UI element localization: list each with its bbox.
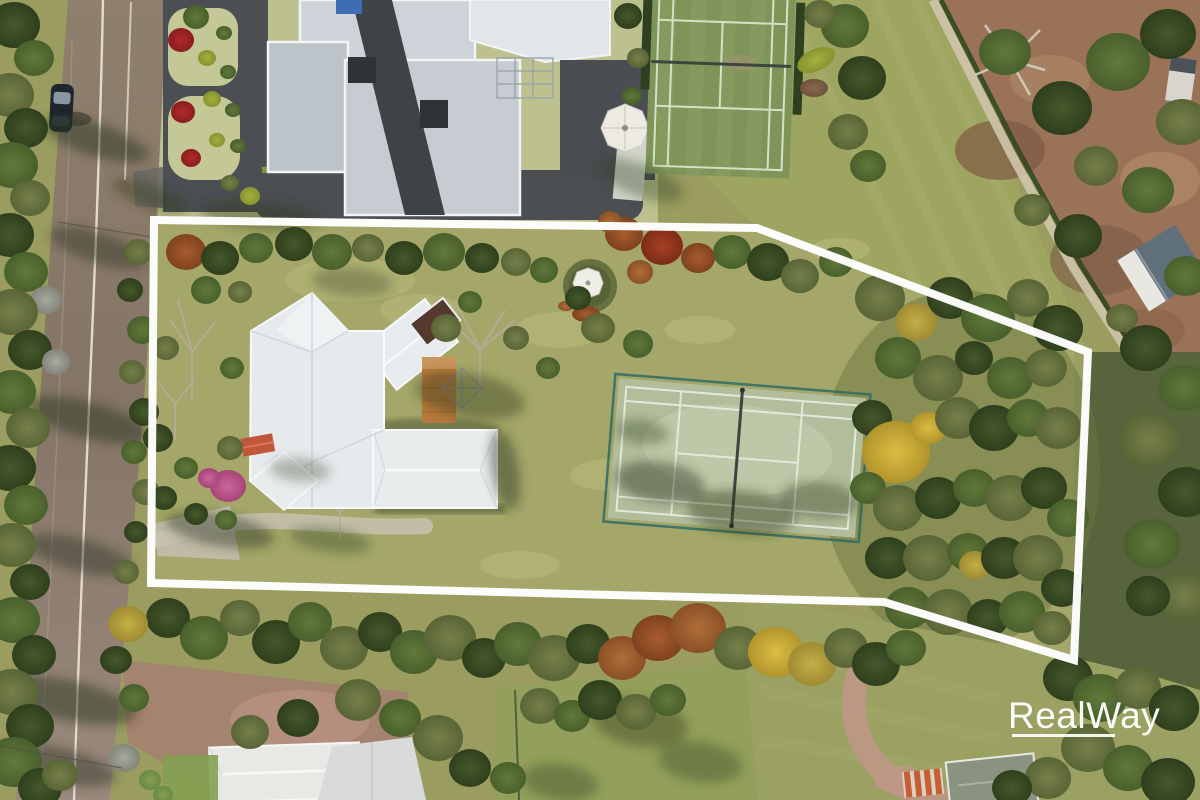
tree-canopy — [530, 257, 558, 283]
tree-canopy — [352, 234, 384, 262]
tree-canopy — [1025, 349, 1067, 387]
tree-canopy — [423, 233, 465, 271]
tree-canopy — [209, 133, 225, 147]
tree-canopy — [220, 600, 260, 636]
tree-canopy — [312, 234, 352, 270]
tree-canopy — [4, 485, 48, 525]
tree-canopy — [124, 239, 152, 265]
tree-canopy — [465, 243, 499, 273]
tree-canopy — [886, 630, 926, 666]
tree-canopy — [119, 684, 149, 712]
tree-canopy — [181, 149, 201, 167]
aerial-photo-canvas — [0, 0, 1200, 800]
tree-canopy — [117, 278, 143, 302]
tree-canopy — [215, 510, 237, 530]
tree-canopy — [713, 235, 751, 269]
tree-canopy — [139, 770, 161, 790]
neighbour-mansion — [133, 0, 655, 220]
tree-canopy — [6, 408, 50, 448]
tree-canopy — [501, 248, 531, 276]
tree-canopy — [623, 330, 653, 358]
tree-canopy — [171, 101, 195, 123]
tree-canopy — [458, 291, 482, 313]
tree-canopy — [1025, 757, 1071, 799]
tree-canopy — [1035, 407, 1081, 449]
tree-canopy — [221, 175, 239, 191]
tree-canopy — [231, 715, 269, 749]
tree-canopy — [203, 91, 221, 107]
tree-canopy — [1106, 304, 1138, 332]
tree-canopy — [108, 744, 140, 772]
tree-canopy — [1033, 611, 1071, 645]
tree-canopy — [581, 313, 615, 343]
tree-canopy — [198, 50, 216, 66]
tree-canopy — [10, 180, 50, 216]
tree-canopy — [804, 0, 836, 28]
tree-canopy — [385, 241, 423, 275]
tree-canopy — [168, 28, 194, 52]
tree-canopy — [641, 227, 683, 265]
tree-canopy — [143, 424, 173, 452]
tree-canopy — [121, 440, 147, 464]
tree-canopy — [277, 699, 319, 737]
tree-canopy — [913, 355, 963, 401]
tree-canopy — [166, 234, 206, 270]
watermark-underline — [1012, 734, 1115, 737]
tree-canopy — [449, 749, 491, 787]
tree-canopy — [850, 150, 886, 182]
tree-canopy — [650, 684, 686, 716]
tree-canopy — [781, 259, 819, 293]
tree-canopy — [42, 759, 78, 791]
tree-canopy — [955, 341, 993, 375]
watermark-text: RealWay — [1008, 695, 1160, 736]
tree-canopy — [217, 436, 243, 460]
tree-canopy — [335, 679, 381, 721]
tree-canopy — [100, 646, 132, 674]
tree-canopy — [174, 457, 198, 479]
tree-canopy — [536, 357, 560, 379]
tree-canopy — [201, 241, 239, 275]
skylight — [420, 100, 448, 128]
tree-canopy — [520, 688, 560, 724]
tree-canopy — [627, 48, 649, 68]
tree-canopy — [191, 276, 221, 304]
tree-canopy — [220, 65, 236, 79]
tree-canopy — [627, 260, 653, 284]
tree-canopy — [1014, 194, 1050, 226]
garden-bed — [800, 79, 828, 97]
tree-canopy — [565, 286, 591, 310]
tree-canopy — [1124, 519, 1180, 569]
tree-canopy — [1126, 576, 1170, 616]
tree-canopy — [503, 326, 529, 350]
tree-canopy — [903, 535, 953, 581]
tree-canopy — [979, 29, 1031, 75]
tree-canopy — [10, 564, 50, 600]
tree-canopy — [230, 139, 246, 153]
tree-canopy — [42, 349, 70, 375]
tree-canopy — [12, 635, 56, 675]
tree-canopy — [275, 227, 313, 261]
tree-canopy — [198, 468, 220, 488]
tree-canopy — [1032, 81, 1092, 135]
neighbour-tennis-court — [637, 0, 806, 179]
tree-canopy — [614, 3, 642, 29]
tree-canopy — [1054, 214, 1102, 258]
tree-canopy — [616, 694, 656, 730]
tree-canopy — [124, 521, 148, 543]
tree-canopy — [4, 108, 48, 148]
tree-canopy — [873, 485, 923, 531]
tree-canopy — [4, 252, 48, 292]
aerial-photo: RealWay — [0, 0, 1200, 800]
pool-cover — [336, 0, 362, 14]
tree-canopy — [1140, 9, 1196, 59]
tree-canopy — [578, 680, 622, 720]
tree-canopy — [681, 243, 715, 273]
tree-canopy — [228, 281, 252, 303]
tree-canopy — [113, 560, 139, 584]
orange-shed — [902, 768, 944, 798]
tree-canopy — [220, 357, 244, 379]
tree-canopy — [239, 233, 273, 263]
tree-canopy — [1086, 33, 1150, 91]
tree-canopy — [1120, 413, 1180, 467]
tree-canopy — [622, 87, 642, 105]
tree-canopy — [108, 606, 148, 642]
tree-canopy — [490, 762, 526, 794]
tree-canopy — [838, 56, 886, 100]
tree-canopy — [225, 103, 241, 117]
tree-canopy — [828, 114, 868, 150]
tree-canopy — [119, 360, 145, 384]
tree-canopy — [1120, 325, 1172, 371]
tree-canopy — [240, 187, 260, 205]
patio-umbrella — [601, 104, 649, 152]
tree-canopy — [184, 503, 208, 525]
tree-canopy — [14, 40, 54, 76]
watermark-logo: RealWay — [1008, 697, 1198, 734]
tree-canopy — [1122, 167, 1174, 213]
tree-canopy — [431, 314, 461, 342]
tree-canopy — [413, 715, 463, 761]
tree-canopy — [216, 26, 232, 40]
tree-canopy — [183, 5, 209, 29]
tree-canopy — [1074, 146, 1118, 186]
skylight — [348, 57, 376, 83]
